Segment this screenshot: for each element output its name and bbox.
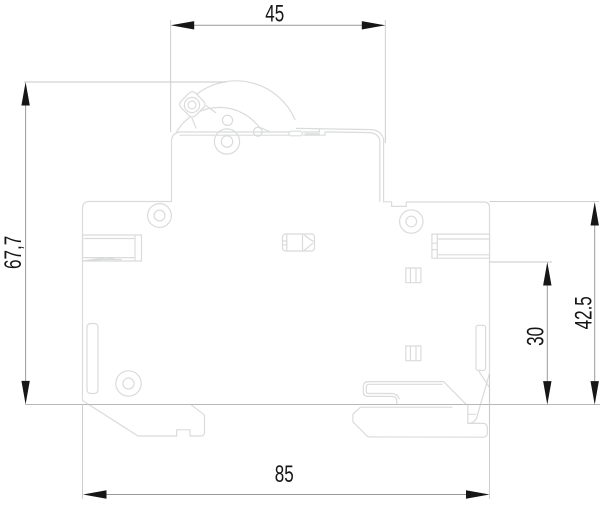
svg-text:67,7: 67,7	[0, 236, 26, 269]
svg-text:30: 30	[523, 327, 549, 346]
svg-text:42.5: 42.5	[571, 296, 597, 329]
svg-text:85: 85	[275, 461, 294, 487]
svg-text:45: 45	[265, 1, 284, 27]
